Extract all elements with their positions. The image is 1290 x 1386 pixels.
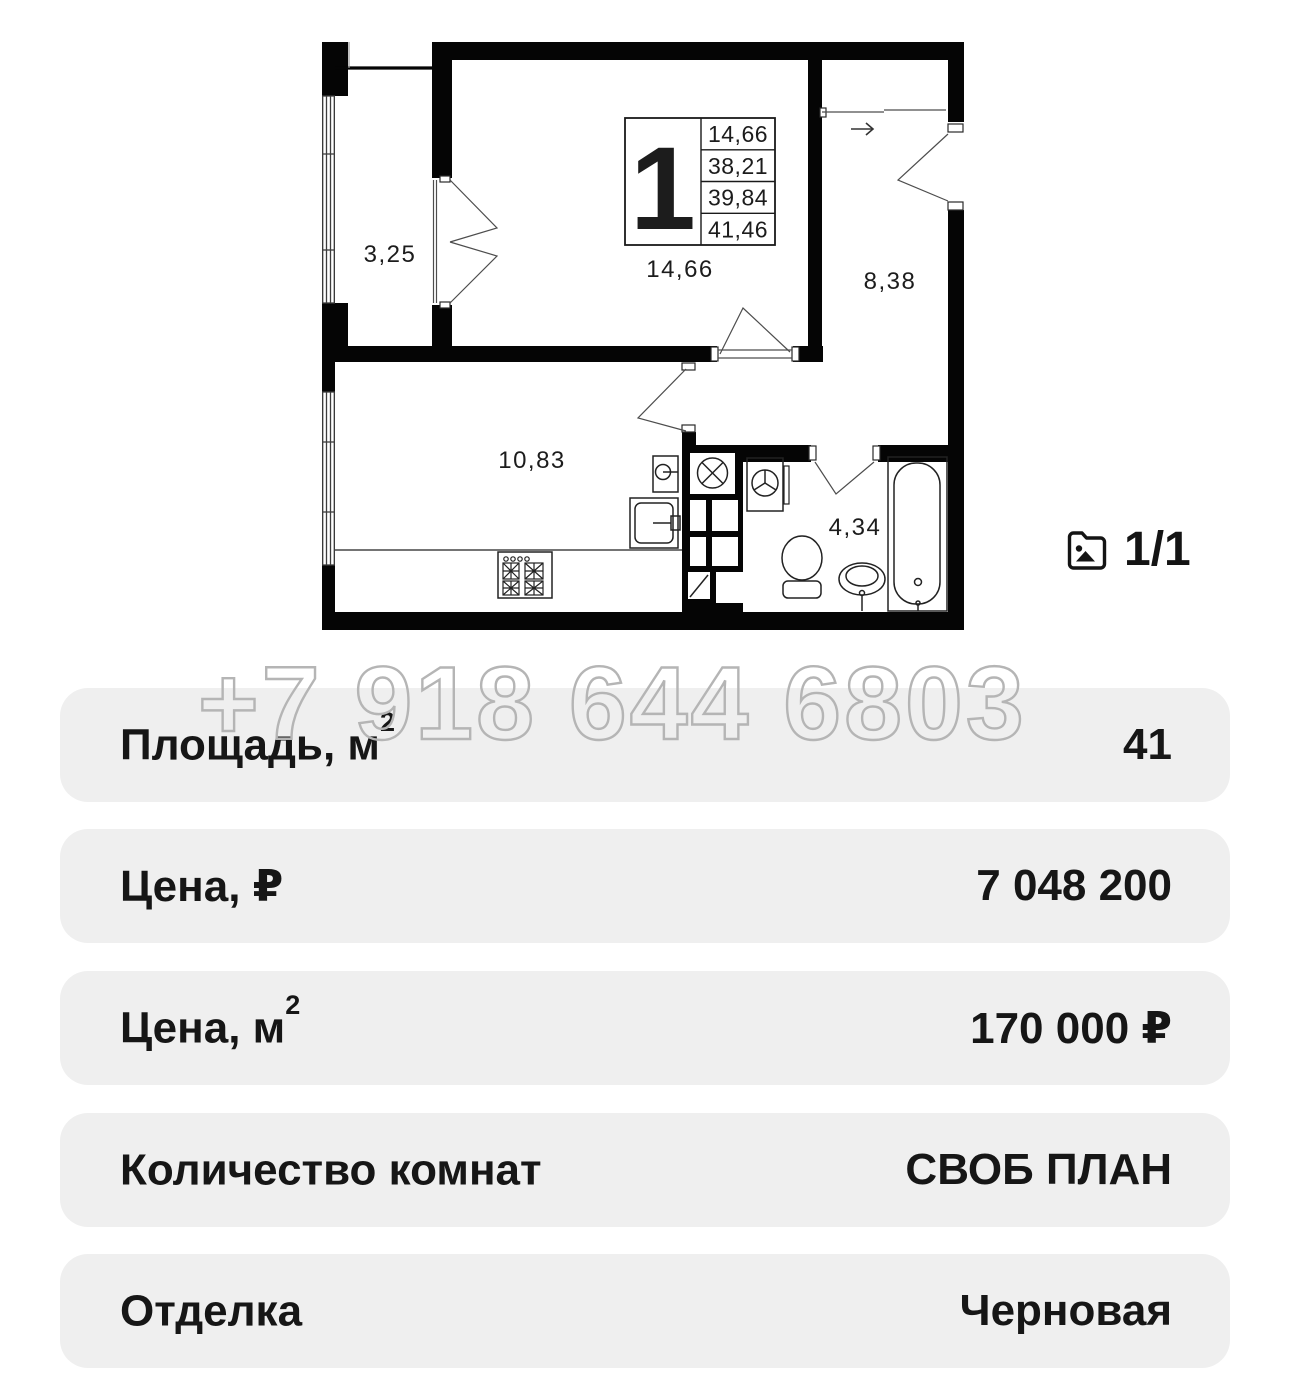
kitchen-fixtures bbox=[335, 456, 682, 598]
stove-icon bbox=[498, 552, 552, 598]
unit-info-box: 1 14,66 38,21 39,84 41,46 bbox=[625, 118, 775, 255]
detail-value: 41 bbox=[1123, 720, 1172, 770]
bathtub-icon bbox=[888, 457, 947, 611]
detail-label: Отделка bbox=[120, 1286, 302, 1337]
label-loggia: 3,25 bbox=[364, 241, 417, 268]
floor-plan-image[interactable]: 1 14,66 38,21 39,84 41,46 14,66 3,25 8,3… bbox=[322, 42, 964, 630]
area-value: 14,66 bbox=[708, 121, 768, 147]
washbasin-icon bbox=[839, 563, 885, 611]
label-kitchen: 10,83 bbox=[498, 447, 566, 474]
photo-counter[interactable]: 1/1 bbox=[1064, 522, 1191, 577]
boiler-icon bbox=[653, 456, 678, 492]
detail-row-rooms: Количество комнат СВОБ ПЛАН bbox=[60, 1113, 1230, 1227]
detail-label: Цена, м2 bbox=[120, 1003, 300, 1054]
label-hallway: 8,38 bbox=[864, 268, 917, 295]
detail-row-price-per-m2: Цена, м2 170 000 ₽ bbox=[60, 971, 1230, 1085]
detail-row-price: Цена, ₽ 7 048 200 bbox=[60, 829, 1230, 943]
label-bathroom: 4,34 bbox=[829, 514, 882, 541]
phone-watermark: +7 918 644 6803 bbox=[198, 652, 1027, 756]
detail-value: СВОБ ПЛАН bbox=[905, 1145, 1172, 1195]
label-living-room: 14,66 bbox=[646, 256, 714, 283]
area-value: 41,46 bbox=[708, 217, 768, 243]
loggia-parapet bbox=[335, 42, 432, 68]
detail-label: Цена, ₽ bbox=[120, 861, 283, 912]
photo-gallery-icon bbox=[1064, 529, 1110, 571]
toilet-icon bbox=[782, 536, 822, 598]
detail-label: Количество комнат bbox=[120, 1145, 542, 1196]
detail-value: 7 048 200 bbox=[976, 861, 1172, 911]
rooms-count: 1 bbox=[630, 123, 696, 255]
detail-value: 170 000 ₽ bbox=[970, 1003, 1172, 1054]
entrance-arrow bbox=[851, 123, 873, 135]
floor-plan-svg: 1 14,66 38,21 39,84 41,46 14,66 3,25 8,3… bbox=[322, 42, 964, 630]
sink-icon bbox=[630, 498, 680, 548]
detail-value: Черновая bbox=[960, 1286, 1172, 1336]
photo-counter-label: 1/1 bbox=[1124, 522, 1191, 577]
detail-row-finishing: Отделка Черновая bbox=[60, 1254, 1230, 1368]
washer-icon bbox=[747, 458, 789, 511]
area-value: 38,21 bbox=[708, 153, 768, 179]
area-value: 39,84 bbox=[708, 185, 768, 211]
